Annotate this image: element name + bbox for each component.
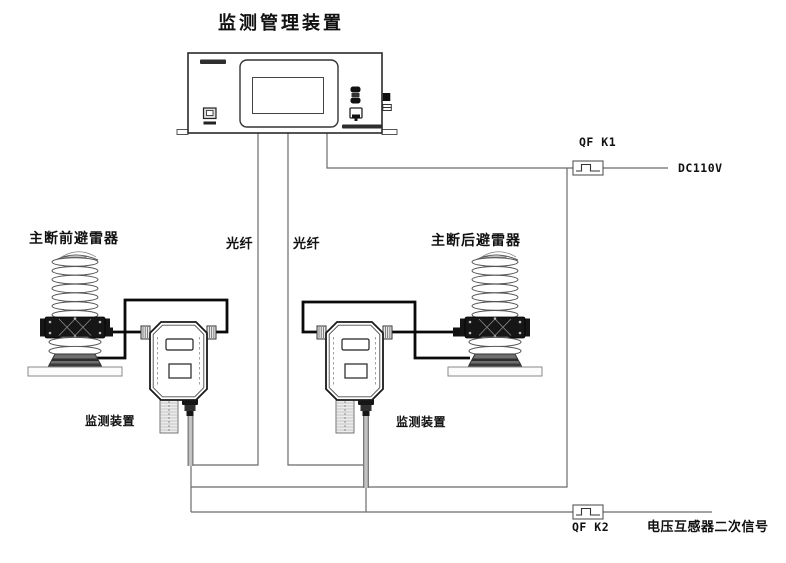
device-screen (253, 78, 324, 114)
monitor-left-label: 监测装置 (85, 415, 135, 427)
dc-power-line (327, 133, 668, 168)
breaker-k1-symbol (573, 161, 603, 175)
device-caption-text (342, 125, 382, 129)
monitoring-device-right (317, 322, 392, 433)
monitor-right-label: 监测装置 (396, 416, 446, 428)
diagram-title: 监测管理装置 (218, 14, 344, 32)
device-logo-text (200, 60, 226, 65)
arrester-right-label: 主断后避雷器 (431, 233, 521, 247)
schematic-lines (191, 133, 712, 512)
management-device (177, 53, 397, 135)
device-port-icon[interactable] (204, 108, 217, 125)
breaker-k2-symbol (573, 505, 603, 519)
device-foot-left (177, 130, 188, 135)
wiring-diagram: 监测管理装置 主断前避雷器 主断后避雷器 光纤 光纤 监测装置 监测装置 QF … (0, 0, 786, 563)
device-port-label (204, 122, 217, 125)
device-connector-icon[interactable] (351, 87, 361, 104)
fiber-left-label: 光纤 (226, 237, 253, 250)
device-foot-right (382, 130, 397, 135)
arrester-left-label: 主断前避雷器 (29, 231, 119, 245)
monitoring-device-left (141, 322, 216, 433)
breaker-k1-label: QF K1 (579, 137, 616, 149)
dc110v-label: DC110V (678, 163, 723, 175)
pt-signal-label: 电压互感器二次信号 (647, 520, 769, 533)
fiber-right-label: 光纤 (293, 237, 320, 250)
diagram-graphics (0, 0, 786, 563)
breaker-k2-label: QF K2 (572, 522, 609, 534)
device-side-terminals (383, 93, 392, 111)
